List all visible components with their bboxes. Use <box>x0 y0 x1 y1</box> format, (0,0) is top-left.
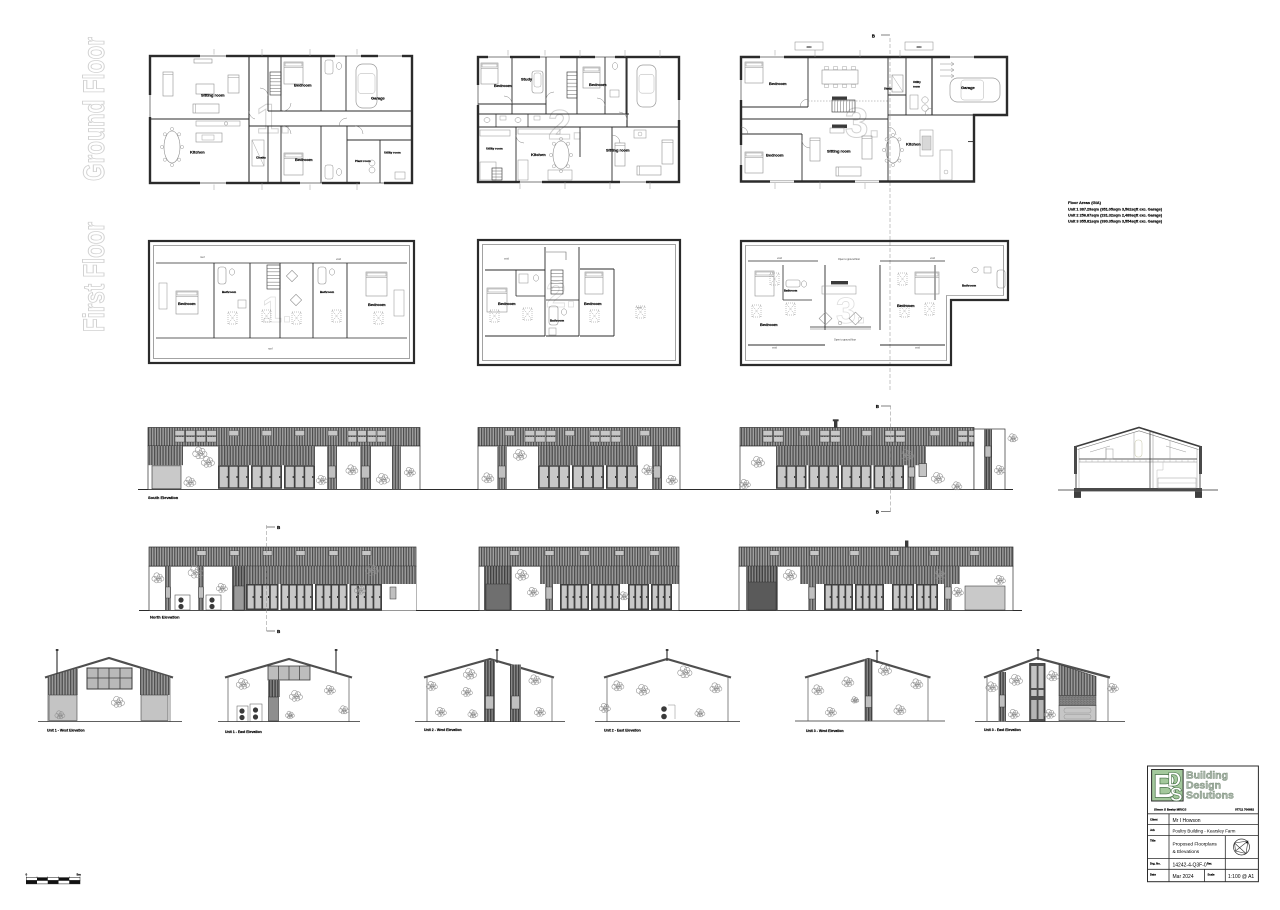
svg-text:Unit 1 387.29sqm (351.05sqm: Unit 1 387.29sqm (351.05sqm 3,562sqft ex… <box>1068 208 1163 212</box>
svg-text:roof: roof <box>200 255 205 259</box>
svg-text:Garage: Garage <box>371 96 386 101</box>
svg-text:Mr I Howson: Mr I Howson <box>1173 818 1201 824</box>
svg-text:Bedroom: Bedroom <box>766 152 784 157</box>
svg-text:1:100 @ A1: 1:100 @ A1 <box>1228 874 1254 880</box>
svg-text:Kitchen: Kitchen <box>906 142 921 147</box>
svg-text:Unit 1 - West Elevation: Unit 1 - West Elevation <box>47 729 85 733</box>
svg-text:Bathroom: Bathroom <box>320 290 334 294</box>
svg-text:Client: Client <box>1150 817 1158 821</box>
svg-text:Title: Title <box>1150 839 1156 843</box>
svg-text:Unit 3 355.81sqm (330.35sqm: Unit 3 355.81sqm (330.35sqm 3,554sqft ex… <box>1068 220 1163 224</box>
svg-text:xxxx: xxxx <box>917 47 923 49</box>
svg-text:Bedroom: Bedroom <box>494 83 512 88</box>
svg-text:Bedroom: Bedroom <box>294 83 312 88</box>
svg-text:Sitting room: Sitting room <box>606 148 630 153</box>
svg-text:Plant room: Plant room <box>355 159 371 163</box>
svg-text:1.: 1. <box>262 289 292 330</box>
svg-text:Bathroom: Bathroom <box>550 319 564 323</box>
svg-text:First Floor: First Floor <box>78 222 111 332</box>
svg-text:14242-4-Q3F-0: 14242-4-Q3F-0 <box>1173 863 1207 869</box>
svg-text:Open to ground floor: Open to ground floor <box>834 339 856 342</box>
svg-text:void: void <box>915 346 920 350</box>
svg-text:Utility: Utility <box>913 80 921 84</box>
svg-text:Sitting room: Sitting room <box>201 93 225 98</box>
svg-text:Scale: Scale <box>1208 873 1216 877</box>
svg-text:Date: Date <box>1150 873 1156 877</box>
svg-text:roof: roof <box>268 347 273 351</box>
svg-text:Rev.: Rev. <box>1207 862 1212 865</box>
svg-text:Bedroom: Bedroom <box>498 301 516 306</box>
svg-text:Bedroom: Bedroom <box>295 157 313 162</box>
svg-text:Unit 2 - East Elevation: Unit 2 - East Elevation <box>604 729 641 733</box>
svg-text:Floor Areas (GIA): Floor Areas (GIA) <box>1068 200 1102 205</box>
svg-text:Simon S Beeby MRICS: Simon S Beeby MRICS <box>1154 807 1186 811</box>
svg-text:S: S <box>1170 785 1183 806</box>
svg-text:void: void <box>930 256 935 260</box>
svg-text:Cloaks: Cloaks <box>256 156 266 160</box>
svg-text:Utility room: Utility room <box>384 150 401 154</box>
svg-text:Bathroom: Bathroom <box>962 284 976 288</box>
svg-text:Drg. No.: Drg. No. <box>1150 862 1161 866</box>
svg-text:3.: 3. <box>845 99 880 146</box>
svg-text:& Elevations: & Elevations <box>1173 849 1200 855</box>
svg-text:Bedroom: Bedroom <box>584 301 602 306</box>
svg-text:07711 706682: 07711 706682 <box>1235 807 1254 811</box>
svg-text:Job: Job <box>1150 828 1155 832</box>
svg-text:Unit 1 - East Elevation: Unit 1 - East Elevation <box>225 730 262 734</box>
svg-text:Bedroom: Bedroom <box>178 301 196 306</box>
svg-text:Bedroom: Bedroom <box>368 302 386 307</box>
svg-text:Study: Study <box>521 77 533 82</box>
svg-text:Proposed Floorplans: Proposed Floorplans <box>1173 841 1218 847</box>
svg-text:North Elevation: North Elevation <box>150 614 180 619</box>
svg-text:Bedroom: Bedroom <box>897 303 915 308</box>
svg-text:Bathroom: Bathroom <box>222 290 236 294</box>
svg-text:Unit 3 - West Elevation: Unit 3 - West Elevation <box>806 729 844 733</box>
svg-text:void: void <box>336 257 341 261</box>
svg-text:5m: 5m <box>77 872 82 876</box>
svg-text:Ground Floor: Ground Floor <box>78 37 111 181</box>
svg-text:Poultry Building - Kearsley Fa: Poultry Building - Kearsley Farm <box>1173 829 1236 834</box>
svg-text:Study: Study <box>884 87 892 91</box>
svg-text:Sitting room: Sitting room <box>827 148 851 153</box>
svg-text:2.: 2. <box>548 101 583 148</box>
svg-text:Bedroom: Bedroom <box>769 81 787 86</box>
svg-text:Bathroom: Bathroom <box>784 289 798 293</box>
svg-text:Garage: Garage <box>961 85 976 90</box>
svg-text:void: void <box>504 257 509 261</box>
svg-text:Open to ground floor: Open to ground floor <box>838 258 860 261</box>
svg-text:Mar 2024: Mar 2024 <box>1173 874 1194 880</box>
svg-text:Kitchen: Kitchen <box>531 152 546 157</box>
svg-text:Kitchen: Kitchen <box>190 149 205 154</box>
svg-text:Bedroom: Bedroom <box>760 322 778 327</box>
svg-text:Unit 2 256.87sqm (231.32sqm: Unit 2 256.87sqm (231.32sqm 2,489sqft ex… <box>1068 214 1163 218</box>
svg-text:Utility room: Utility room <box>486 147 503 151</box>
svg-text:void: void <box>637 306 642 310</box>
svg-text:Solutions: Solutions <box>1186 790 1234 802</box>
svg-text:void: void <box>772 346 777 350</box>
svg-text:Unit 3 - East Elevation: Unit 3 - East Elevation <box>984 728 1021 732</box>
svg-text:South Elevation: South Elevation <box>148 495 179 500</box>
svg-text:xxxx: xxxx <box>807 47 813 49</box>
svg-text:room: room <box>913 85 921 89</box>
svg-text:1.: 1. <box>256 95 291 142</box>
svg-text:void: void <box>777 256 782 260</box>
svg-text:Unit 2 - West Elevation: Unit 2 - West Elevation <box>424 728 462 732</box>
svg-text:Bedroom: Bedroom <box>589 82 607 87</box>
